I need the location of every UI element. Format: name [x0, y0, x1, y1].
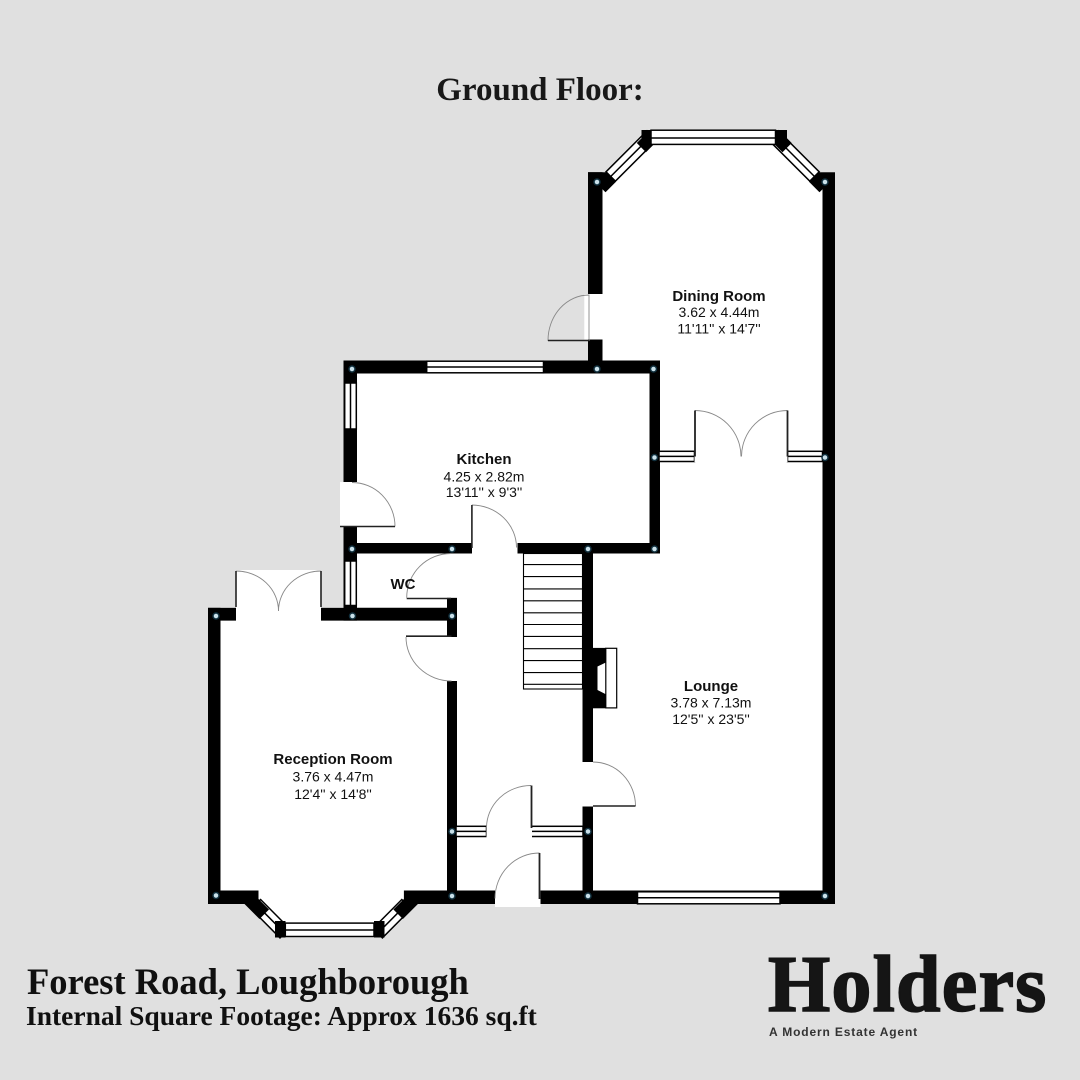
svg-text:11'11'' x 14'7'': 11'11'' x 14'7'' [677, 321, 760, 337]
svg-text:3.78 x 7.13m: 3.78 x 7.13m [671, 695, 752, 711]
svg-text:Lounge: Lounge [684, 678, 738, 695]
svg-text:4.25 x 2.82m: 4.25 x 2.82m [444, 469, 525, 485]
svg-text:13'11'' x 9'3'': 13'11'' x 9'3'' [446, 484, 523, 500]
svg-text:Kitchen: Kitchen [456, 451, 511, 468]
svg-text:Reception Room: Reception Room [273, 751, 392, 768]
svg-text:Dining Room: Dining Room [672, 288, 765, 305]
svg-text:12'5'' x 23'5'': 12'5'' x 23'5'' [672, 711, 750, 727]
svg-text:WC: WC [391, 576, 416, 593]
svg-text:3.76 x 4.47m: 3.76 x 4.47m [293, 769, 374, 785]
svg-text:3.62 x 4.44m: 3.62 x 4.44m [679, 304, 760, 320]
svg-text:12'4'' x 14'8'': 12'4'' x 14'8'' [294, 786, 372, 802]
